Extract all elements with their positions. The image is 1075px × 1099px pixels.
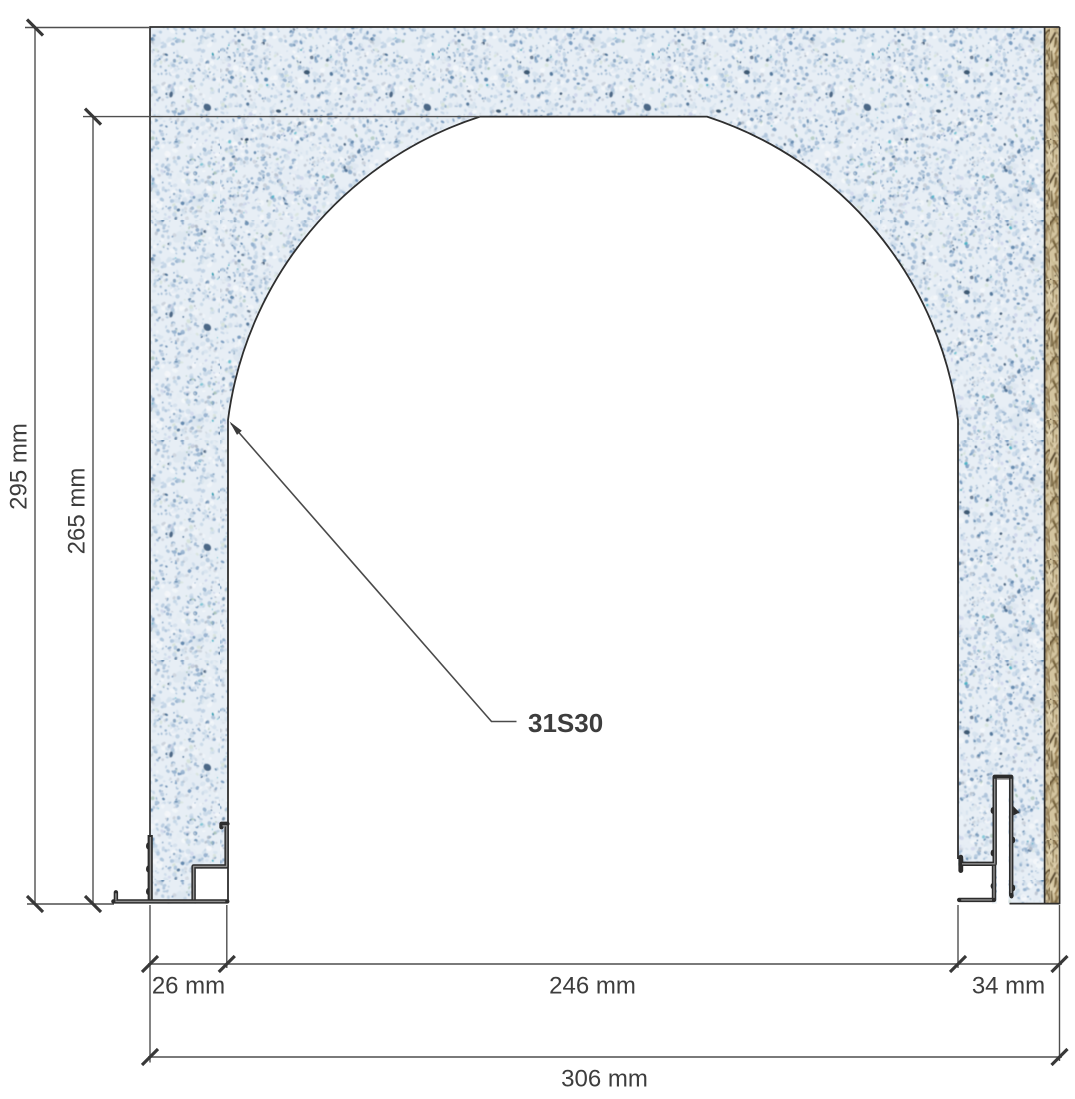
svg-text:246 mm: 246 mm: [549, 973, 636, 1000]
svg-text:295 mm: 295 mm: [6, 423, 33, 510]
svg-text:31S30: 31S30: [528, 708, 603, 738]
svg-text:306 mm: 306 mm: [561, 1066, 648, 1093]
svg-text:265 mm: 265 mm: [64, 468, 91, 555]
svg-text:26 mm: 26 mm: [152, 973, 225, 1000]
svg-text:34 mm: 34 mm: [972, 973, 1045, 1000]
